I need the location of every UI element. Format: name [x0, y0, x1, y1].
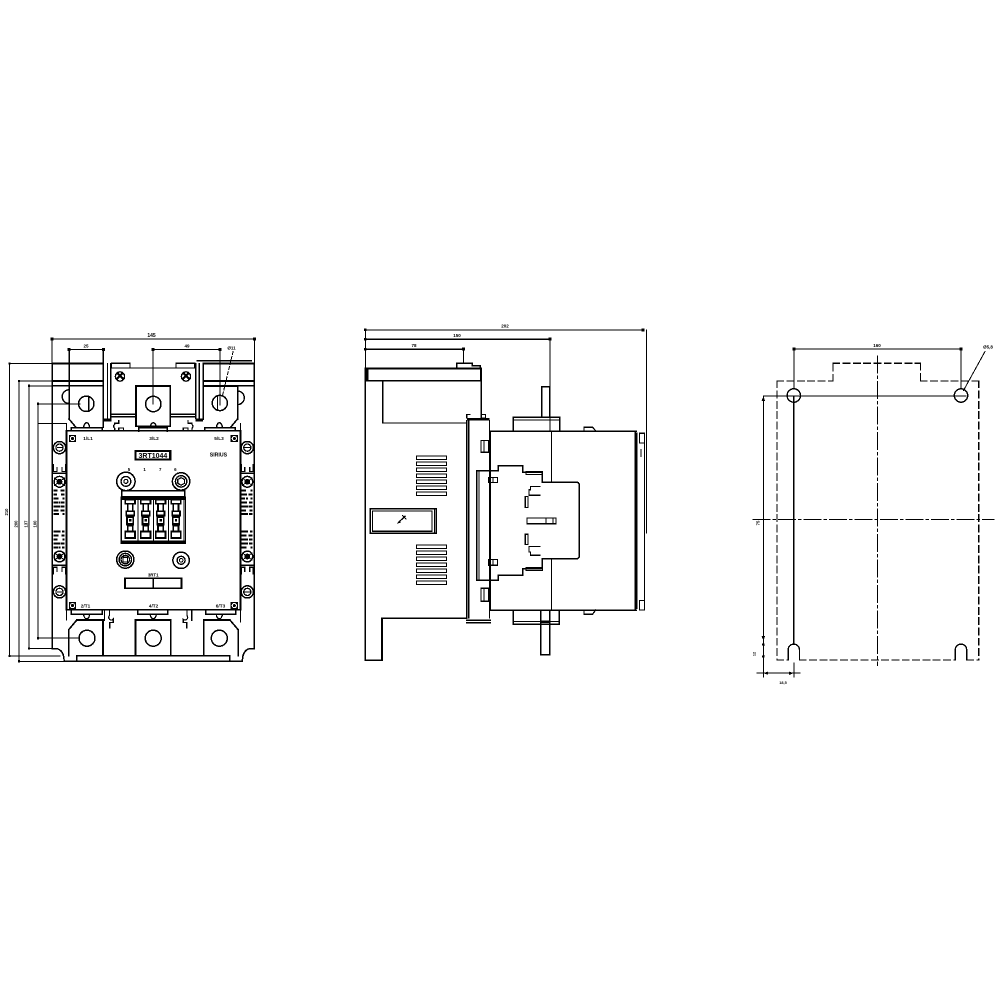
svg-text:210: 210: [4, 508, 9, 516]
svg-text:5: 5: [128, 467, 131, 472]
svg-text:200: 200: [14, 520, 19, 528]
svg-text:78: 78: [411, 343, 417, 348]
svg-text:1/L1: 1/L1: [83, 436, 93, 441]
svg-text:7: 7: [159, 467, 162, 472]
svg-text:5/L3: 5/L3: [214, 436, 224, 441]
svg-text:49: 49: [184, 344, 190, 349]
svg-text:Ø5,8: Ø5,8: [983, 345, 993, 350]
svg-text:75: 75: [755, 520, 760, 525]
svg-text:100: 100: [33, 520, 38, 528]
svg-text:3RT1: 3RT1: [148, 573, 159, 578]
svg-text:3RT1044: 3RT1044: [139, 453, 168, 460]
svg-text:12: 12: [752, 652, 756, 656]
svg-text:202: 202: [501, 324, 509, 329]
svg-text:137: 137: [24, 520, 29, 528]
svg-text:Ø11: Ø11: [227, 346, 236, 351]
svg-text:2/T1: 2/T1: [81, 603, 91, 608]
svg-text:4/T2: 4/T2: [149, 603, 159, 608]
svg-text:145: 145: [147, 333, 156, 339]
svg-text:150: 150: [453, 333, 461, 338]
svg-text:1: 1: [143, 467, 146, 472]
svg-text:3/L2: 3/L2: [149, 436, 159, 441]
svg-text:SIRIUS: SIRIUS: [210, 452, 228, 458]
svg-text:18,5: 18,5: [779, 681, 786, 685]
svg-text:6/T3: 6/T3: [216, 603, 226, 608]
svg-text:25: 25: [83, 344, 89, 349]
svg-text:160: 160: [873, 343, 881, 348]
svg-text:6: 6: [174, 467, 177, 472]
